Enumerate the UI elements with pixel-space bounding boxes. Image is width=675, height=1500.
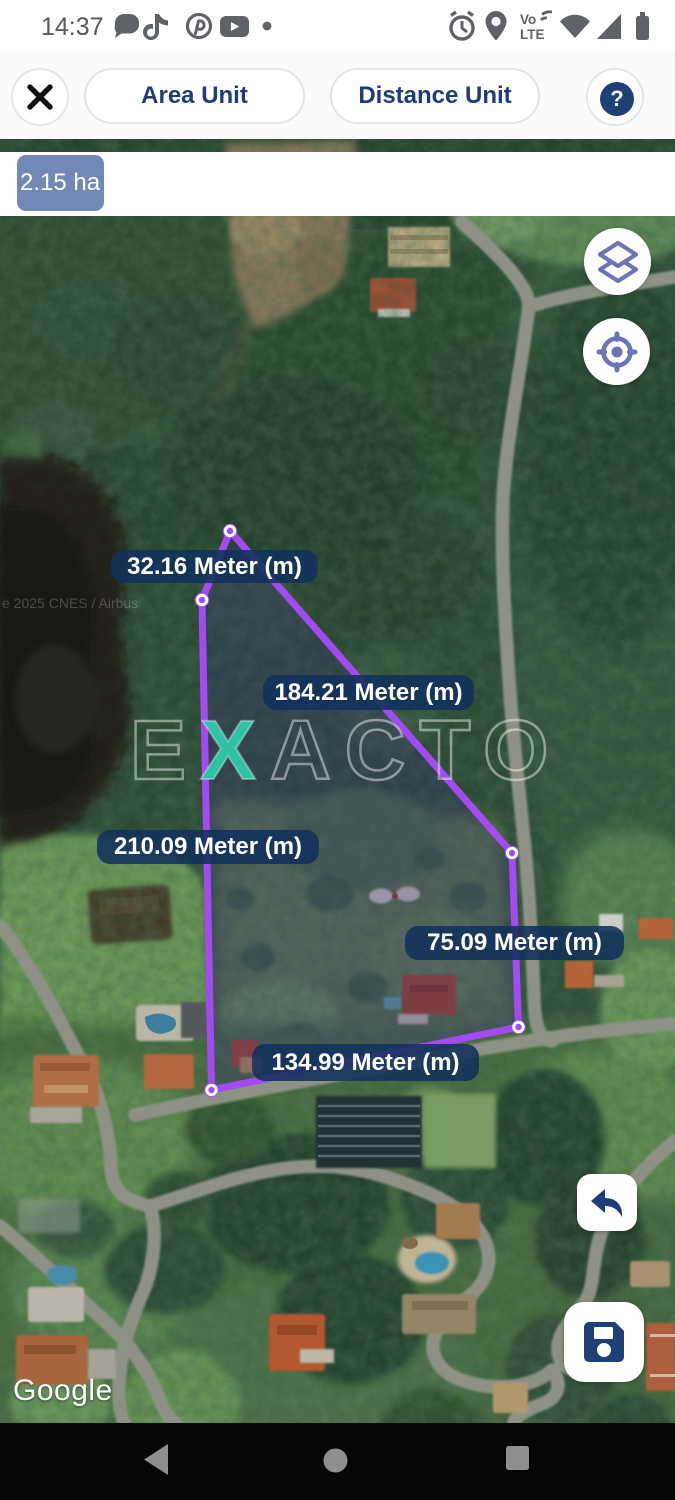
svg-text:Vo: Vo bbox=[520, 12, 536, 27]
svg-text:LTE: LTE bbox=[520, 27, 545, 42]
